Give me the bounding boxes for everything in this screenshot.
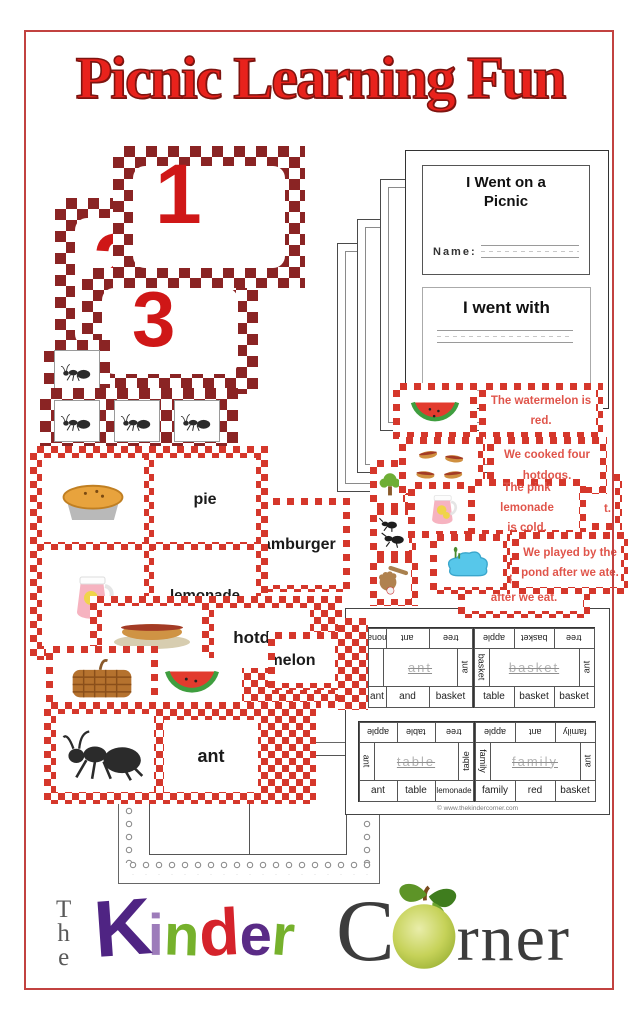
word-label: table [406,727,426,737]
word-label: family [478,749,488,773]
word-work-sheet: lemonade ant tree ant ant ant and basket… [345,608,610,815]
word-label: ant [529,727,542,737]
word-label: table [461,751,471,771]
ant-icon [60,360,94,382]
sentence-strip-lemonade: The pink lemonade is cold. [468,479,586,537]
scroll-border [127,859,371,875]
logo-kinder: Kinder [94,888,295,968]
word-label: basket [554,686,595,708]
name-label: Name: [433,246,477,258]
word-label: basket [521,633,548,643]
number-3: 3 [132,280,175,358]
word-label: ant [581,661,591,674]
ant-icon [180,410,214,432]
melon-word: melon [275,652,316,670]
word-label: tree [566,633,582,643]
booklet-title-line2: Picnic [484,193,528,210]
strip-text: red. [530,415,551,427]
pie-word: pie [193,491,216,509]
ant-icon [120,410,154,432]
logo-the: T h e [56,898,71,969]
booklet-cover-page: I Went on a Picnic Name: I went with [405,150,609,409]
booklet-page2-box: I went with [422,287,591,391]
watermelon-icon [409,394,461,428]
strip-text: We played by the [523,547,617,559]
watermelon-icon [160,662,224,700]
handwriting-line [481,245,579,258]
trace-word: ant [408,660,432,675]
basket-icon [65,657,139,701]
card-edge-fragment [338,618,368,710]
trace-word: table [397,754,435,769]
strip-text: The pink lemonade [500,482,554,514]
strip-text: We cooked four [504,449,590,461]
word-label: ant [459,661,469,674]
word-label: tree [443,633,459,643]
watermelon-picture-card [393,383,477,439]
word-label: family [563,727,587,737]
hotdog-plate-icon [110,614,194,650]
ant-picture-card [56,714,154,792]
ant-counting-card-3 [40,388,238,452]
pond-picture-card [430,534,510,594]
word-label: apple [483,633,505,643]
number-1: 1 [155,152,202,236]
word-label: and [386,686,430,708]
apple-icon [387,880,463,974]
word-work-card-basket: apple basket tree basket basket ant tabl… [473,627,595,708]
handwriting-line [437,330,573,343]
word-label: basket [477,654,487,681]
word-label: ant [368,686,387,708]
word-label: tree [446,727,462,737]
vocab-card-page: ant [44,702,316,804]
baseball-glove-picture-card [370,556,418,606]
strip-text: The watermelon is [491,395,591,407]
strip-text: pond after we ate. [521,567,619,579]
site-watermark: © www.thekindercorner.com [346,805,609,812]
lemonade-pitcher-icon [428,491,458,529]
word-label: ant [401,633,414,643]
sentence-strip-pond: We played by the pond after we ate. [512,532,628,594]
word-label: basket [514,686,555,708]
ant-word-card: ant [164,720,258,792]
booklet-title: I Went on a Picnic [423,174,589,212]
hotdogs-icon [413,448,471,484]
strip-fragment-text: t. [604,503,611,515]
sentence-strip-watermelon: The watermelon is red. [479,383,603,439]
melon-word-card: melon [268,632,342,690]
trace-word: basket [509,660,559,675]
pin-image: Picnic Learning Fun I Went on a Picnic N… [0,0,640,1024]
trace-word: family [512,754,558,769]
ant-word: ant [198,746,225,767]
logo-corner: C rner [336,888,571,976]
booklet-page2-title: I went with [423,298,590,318]
word-label: ant [582,755,592,768]
booklet-title-line1: I Went on a [466,174,546,191]
pie-word-card: pie [154,458,256,542]
word-label: apple [484,727,506,737]
page-title: Picnic Learning Fun [0,44,640,113]
word-label: table [474,686,515,708]
word-label: ant [361,755,371,768]
pond-icon [443,545,497,583]
word-work-card-ant: lemonade ant tree ant ant ant and basket [367,627,473,708]
word-label: apple [367,727,389,737]
ants-icon [376,516,410,550]
pie-icon [55,474,131,526]
word-label: basket [429,686,473,708]
word-label: lemonade [368,633,387,643]
pie-picture-card [42,458,144,542]
ant-icon [60,410,94,432]
ant-icon [62,724,148,782]
baseball-glove-icon [376,564,412,598]
booklet-title-box: I Went on a Picnic Name: [422,165,590,275]
number-card-1: 1 [113,146,305,288]
